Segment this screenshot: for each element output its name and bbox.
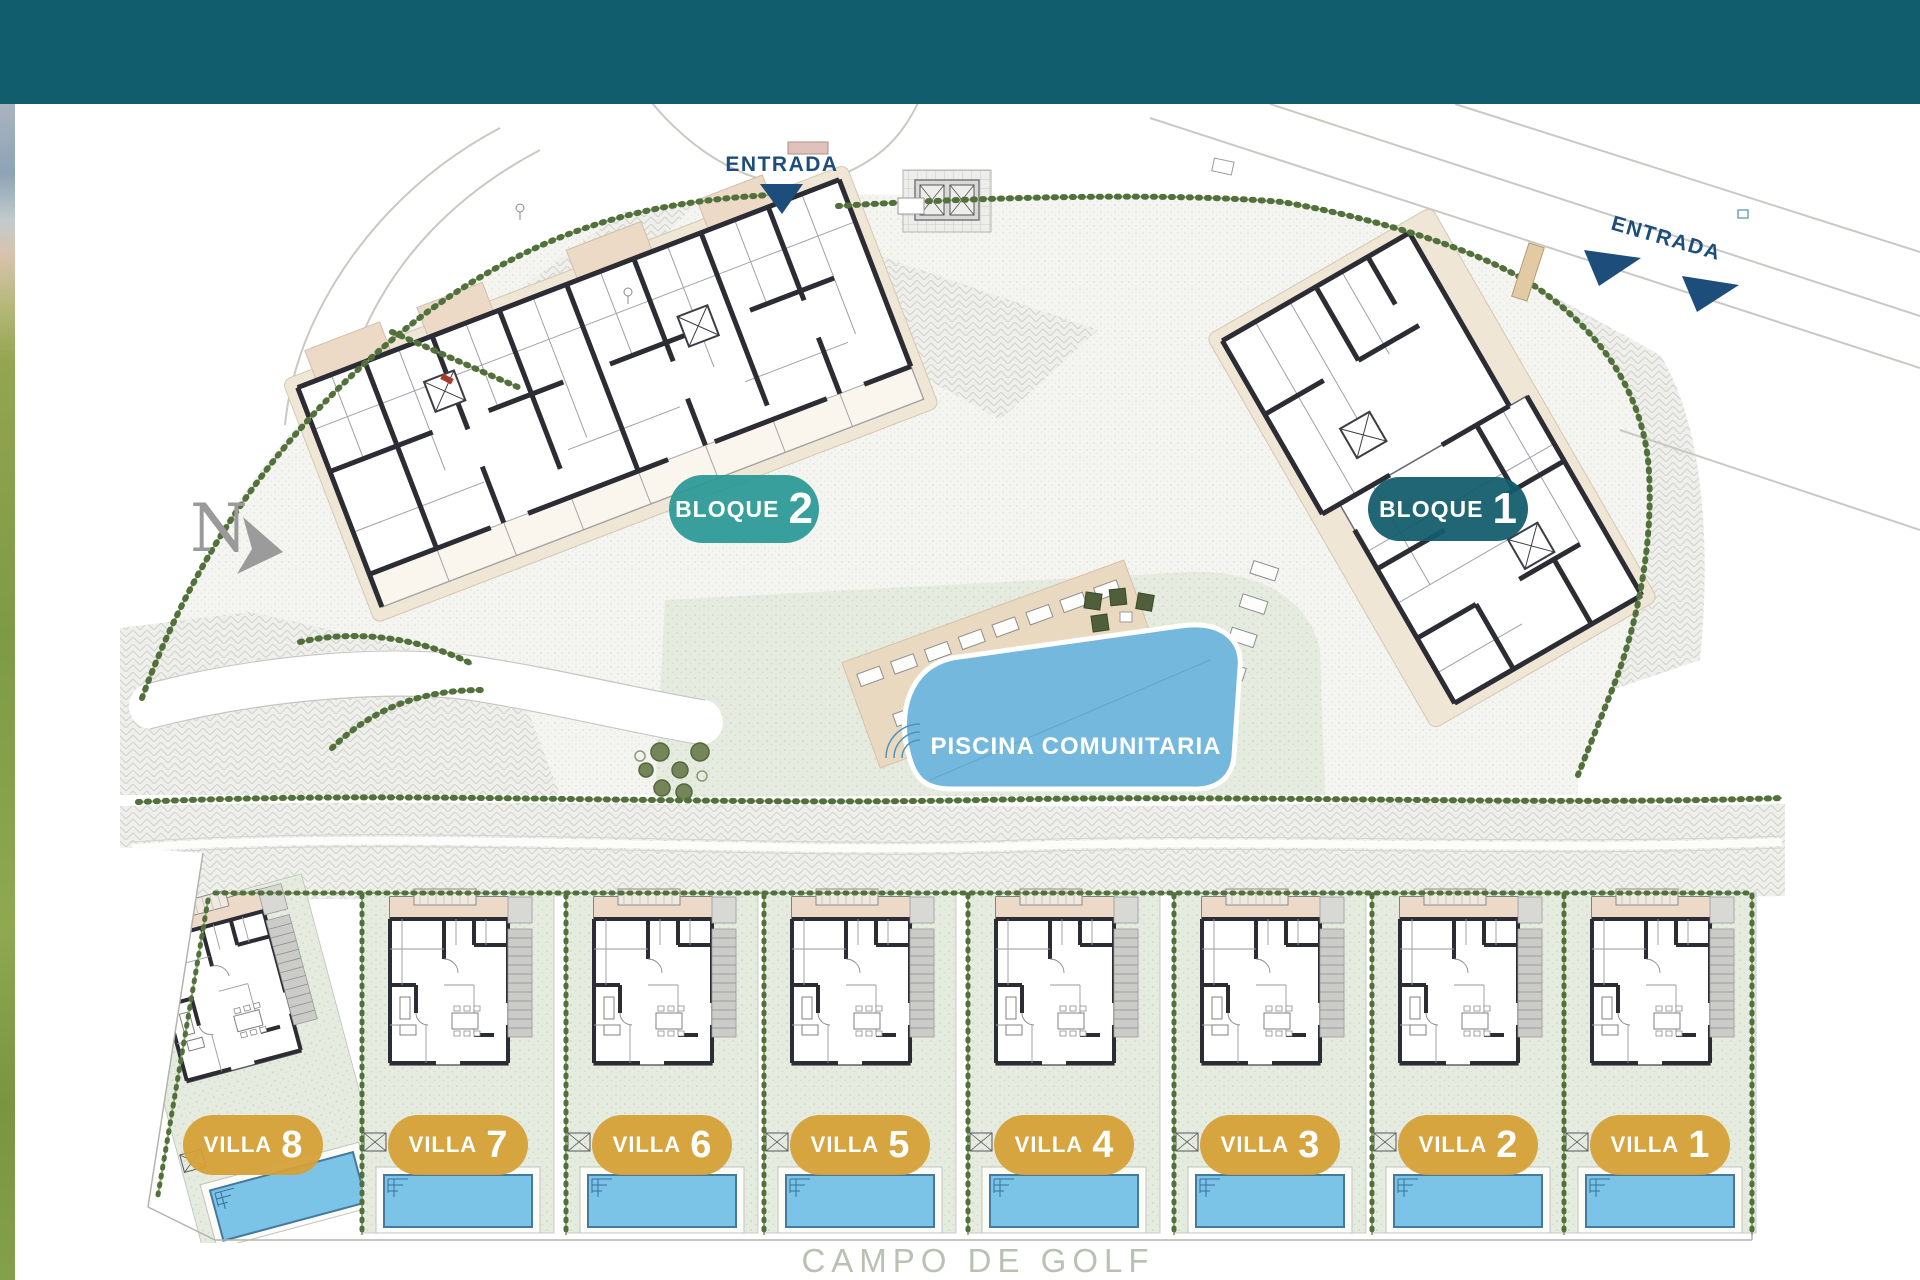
villa-plot-1 (1564, 889, 1756, 1233)
villa-plot-2 (1372, 889, 1564, 1233)
hedge-gate (898, 198, 924, 214)
golf-course-label: CAMPO DE GOLF (768, 1244, 1188, 1278)
villa-1-badge-label: VILLA (1611, 1132, 1680, 1158)
villa-plot-7 (362, 889, 554, 1233)
villa-6-badge-label: VILLA (613, 1132, 682, 1158)
site-plan-page: N ENTRADA ENTRADA BLOQUE 2 BLOQUE 1 PISC… (0, 0, 1920, 1280)
villa-6-badge-number: 6 (690, 1126, 711, 1164)
villa-3-badge-label: VILLA (1221, 1132, 1290, 1158)
villa-5-badge-label: VILLA (811, 1132, 880, 1158)
bloque-2-badge-number: 2 (788, 487, 812, 531)
villa-plot-6 (566, 889, 758, 1233)
villa-plot-3 (1174, 889, 1366, 1233)
villa-7-badge-number: 7 (486, 1126, 507, 1164)
villa-4-badge-label: VILLA (1015, 1132, 1084, 1158)
villa-2-badge: VILLA 2 (1398, 1115, 1538, 1175)
villa-plot-5 (764, 889, 956, 1233)
villa-3-badge: VILLA 3 (1200, 1115, 1340, 1175)
villa-plot-4 (968, 889, 1160, 1233)
community-pool-label: PISCINA COMUNITARIA (916, 732, 1236, 762)
villa-2-badge-label: VILLA (1419, 1132, 1488, 1158)
villa-6-badge: VILLA 6 (592, 1115, 732, 1175)
villa-8-badge-label: VILLA (204, 1132, 273, 1158)
bloque-1-badge: BLOQUE 1 (1368, 477, 1528, 541)
photo-strip (0, 103, 15, 1280)
villa-5-badge: VILLA 5 (790, 1115, 930, 1175)
bloque-1-badge-number: 1 (1492, 487, 1516, 531)
villa-8-badge: VILLA 8 (183, 1115, 323, 1175)
entrance-1-label: ENTRADA (712, 152, 852, 178)
villa-4-badge-number: 4 (1092, 1126, 1113, 1164)
villa-1-badge-number: 1 (1688, 1126, 1709, 1164)
north-label: N (190, 496, 248, 562)
villa-7-badge-label: VILLA (409, 1132, 478, 1158)
villa-1-badge: VILLA 1 (1590, 1115, 1730, 1175)
site-plan-drawing (0, 0, 1920, 1280)
bloque-1-badge-label: BLOQUE (1379, 496, 1483, 523)
villa-5-badge-number: 5 (888, 1126, 909, 1164)
bloque-2-badge: BLOQUE 2 (669, 475, 819, 543)
bloque-2-badge-label: BLOQUE (675, 496, 779, 523)
villa-4-badge: VILLA 4 (994, 1115, 1134, 1175)
villa-3-badge-number: 3 (1298, 1126, 1319, 1164)
villa-7-badge: VILLA 7 (388, 1115, 528, 1175)
villa-2-badge-number: 2 (1496, 1126, 1517, 1164)
header-band (0, 0, 1920, 104)
villa-8-badge-number: 8 (281, 1126, 302, 1164)
